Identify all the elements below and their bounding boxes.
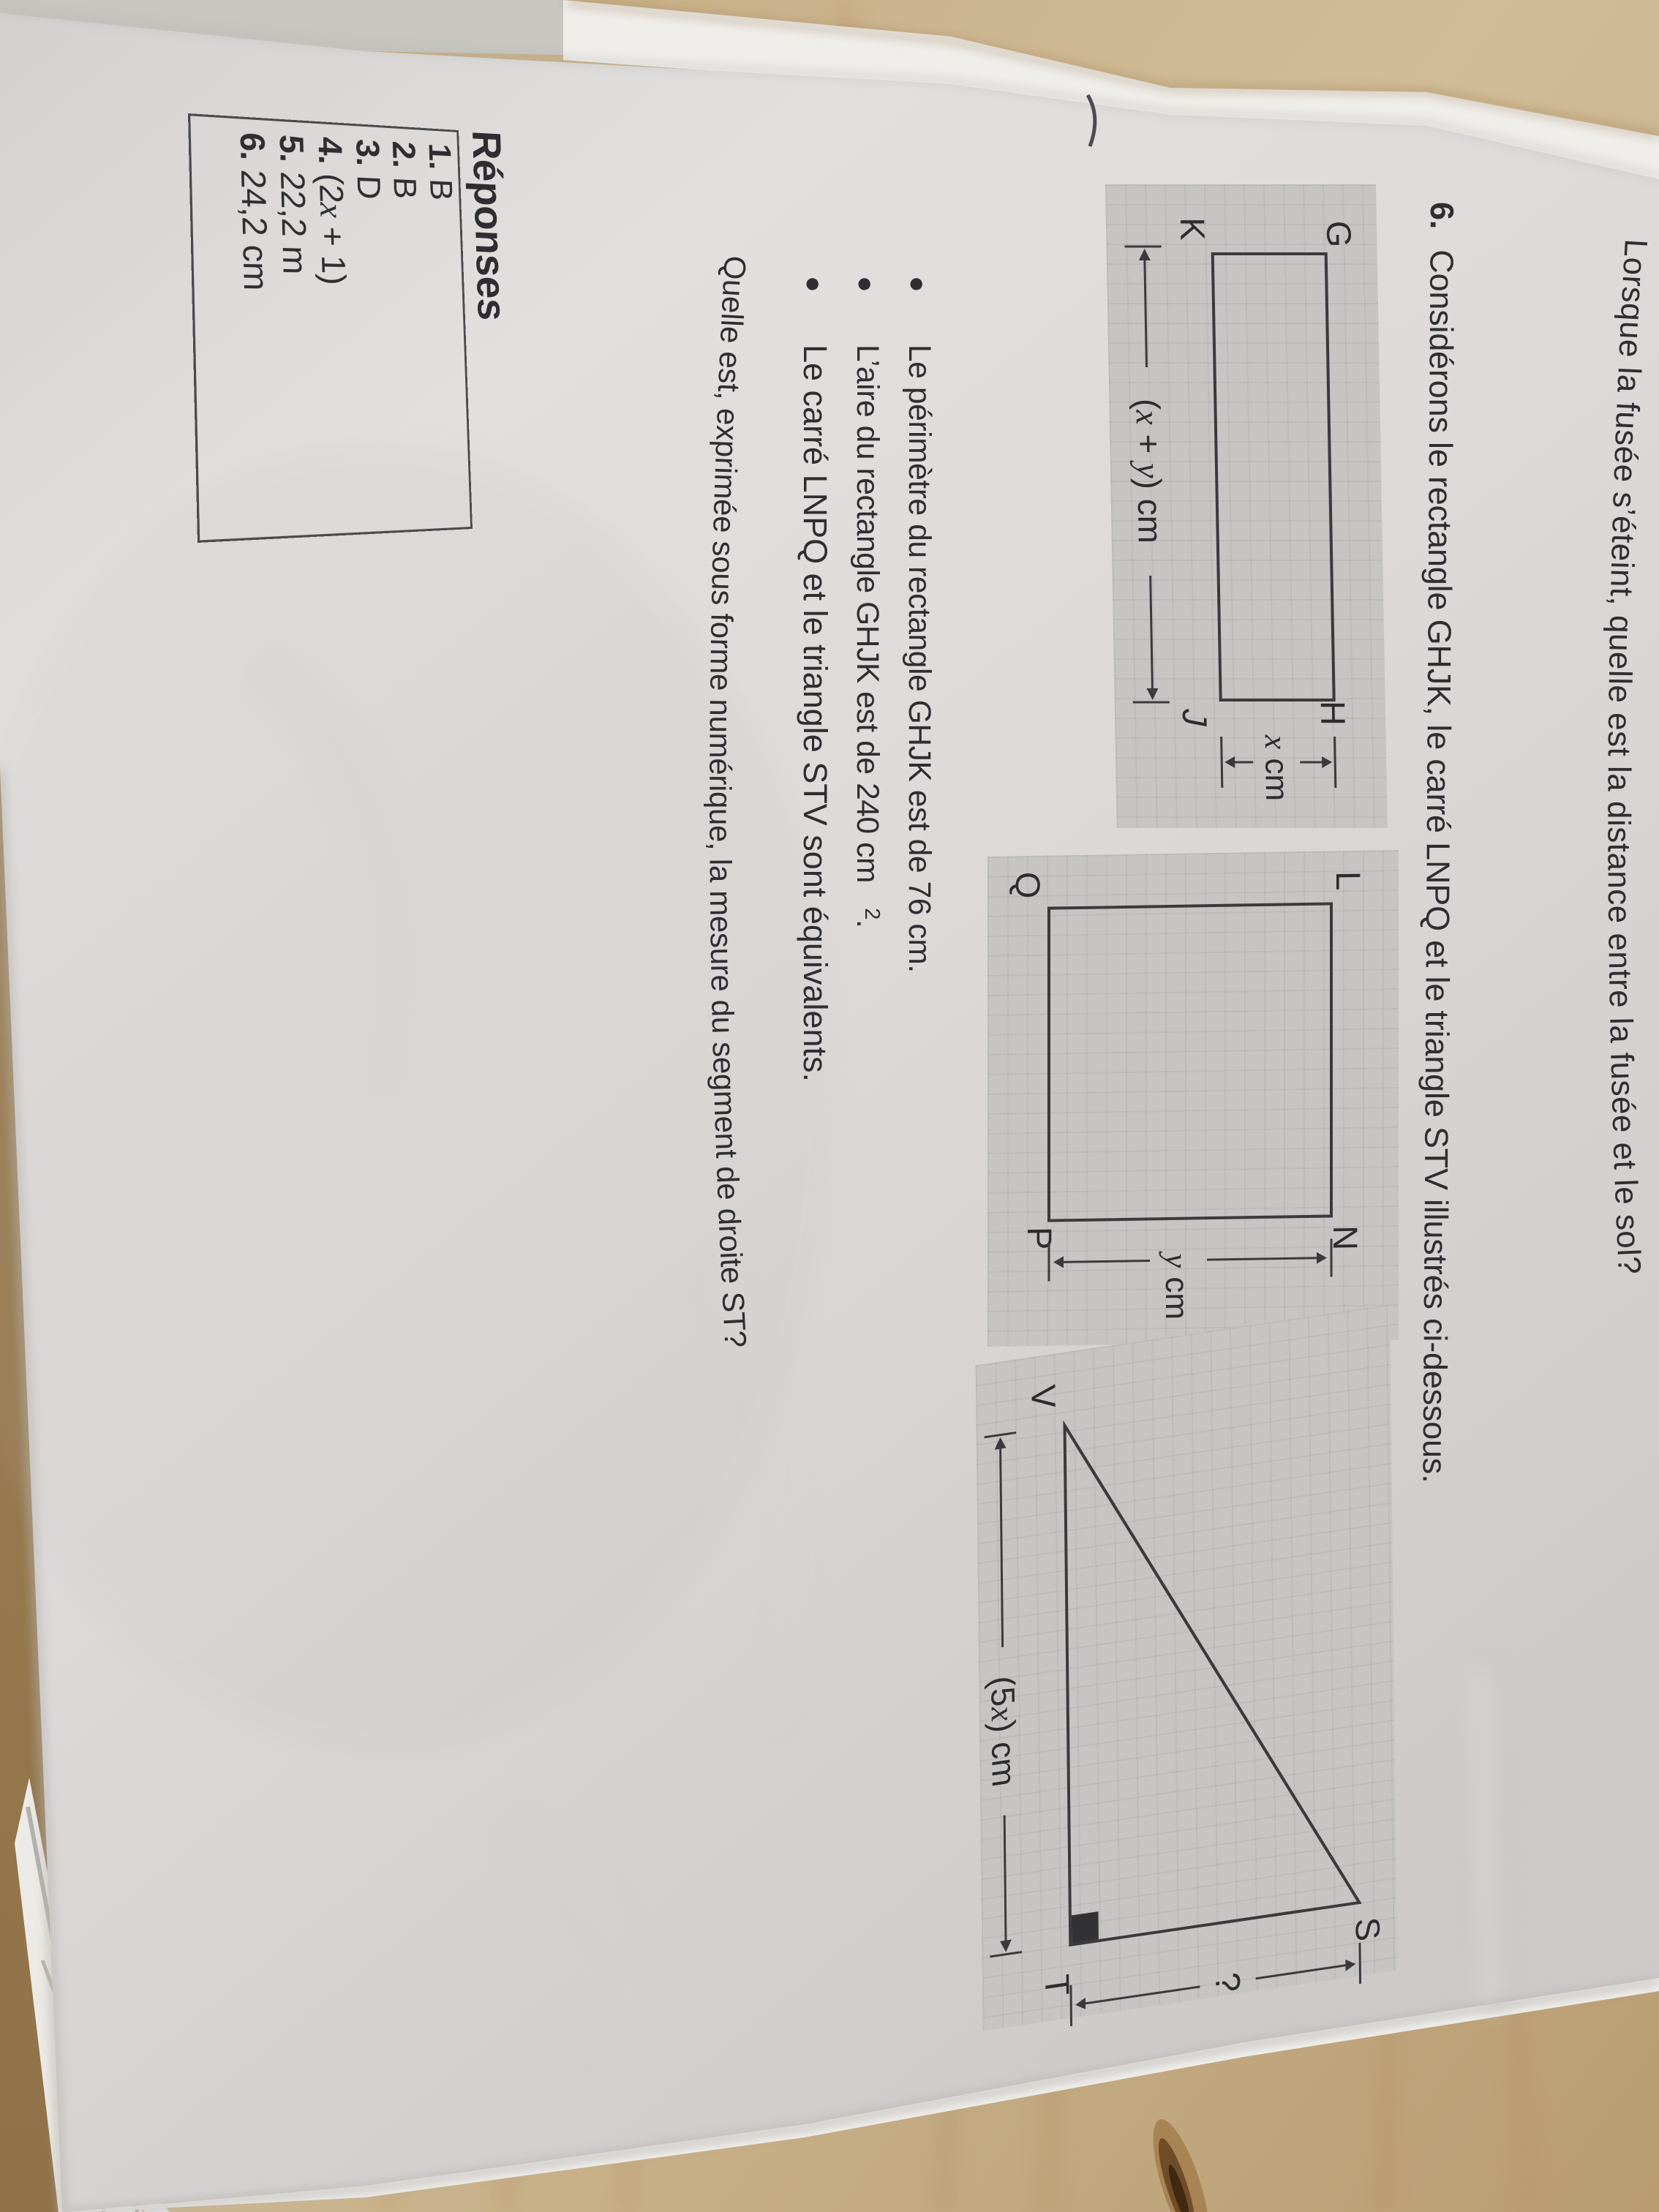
svg-text:(5x) cm: (5x) cm [984, 1674, 1023, 1789]
svg-text:Q: Q [1009, 871, 1047, 898]
svg-text:H: H [1314, 701, 1353, 726]
svg-text:V: V [1024, 1382, 1063, 1412]
svg-text:(x + y) cm: (x + y) cm [1129, 399, 1170, 543]
svg-text:P: P [1020, 1227, 1059, 1250]
svg-text:S: S [1349, 1915, 1388, 1944]
svg-text:Quelle est, exprimée sous form: Quelle est, exprimée sous forme numériqu… [703, 255, 753, 1349]
svg-text:y cm: y cm [1159, 1250, 1195, 1320]
svg-text:G: G [1320, 221, 1359, 248]
svg-text:K: K [1173, 217, 1213, 240]
svg-text:?: ? [1208, 1970, 1246, 1995]
svg-text:J: J [1175, 708, 1214, 726]
svg-text:L: L [1329, 871, 1368, 891]
svg-text:Lorsque la fusée s’éteint, que: Lorsque la fusée s’éteint, quelle est la… [1600, 238, 1653, 1275]
svg-text:x cm: x cm [1258, 734, 1295, 801]
